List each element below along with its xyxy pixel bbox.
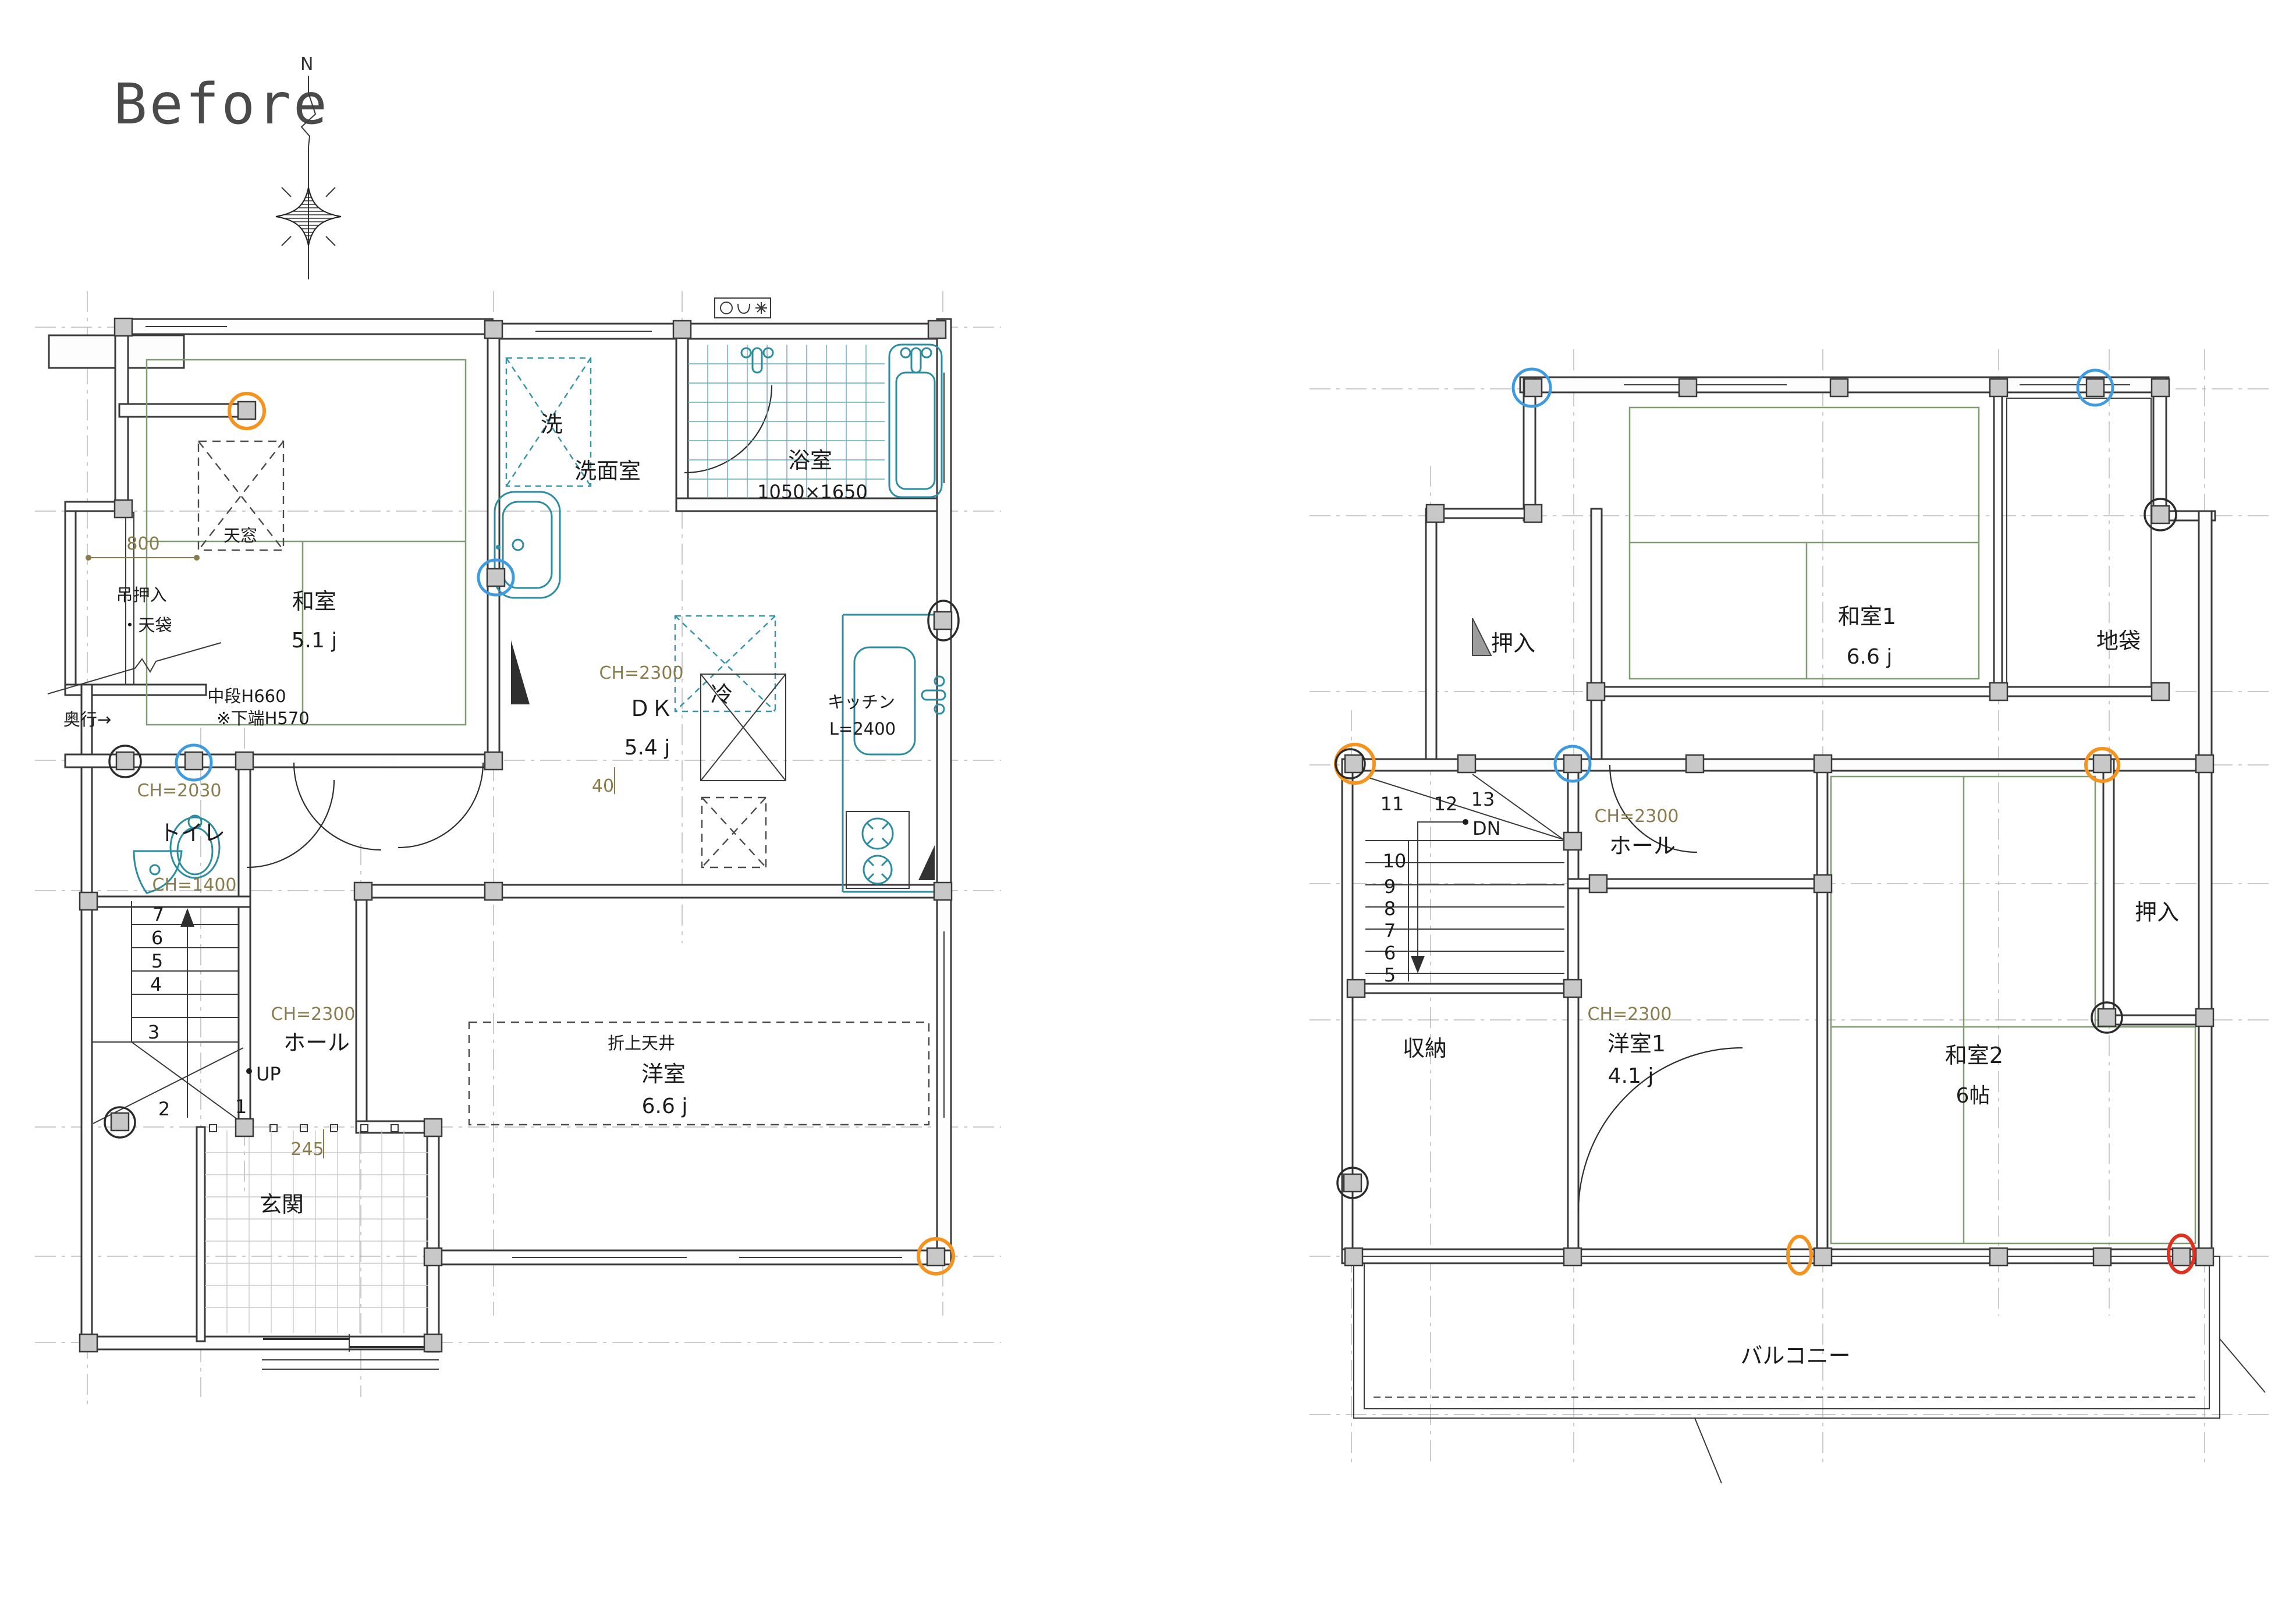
bathroom	[688, 345, 942, 498]
yoshitsu-area: 6.6 j	[642, 1094, 688, 1118]
toilet-label: トイレ	[159, 820, 225, 846]
stair-8: 8	[1384, 898, 1396, 920]
yoshitsu1-area: 4.1 j	[1608, 1064, 1654, 1088]
hall-ch-label: CH=2300	[271, 1004, 356, 1025]
floor1-labels: 和室 5.1 j 天窓 800 吊押入 ・天袋 奥行→ 中段H660 ※下端H5…	[63, 412, 896, 1217]
stair-7: 7	[152, 903, 164, 926]
entrance-label: 玄関	[260, 1192, 304, 1217]
hanging-closet-label: 吊押入	[116, 585, 166, 605]
bath-tile-grid	[688, 345, 885, 498]
dn-label: DN	[1472, 817, 1501, 839]
floorplan-canvas: Before N	[0, 0, 2296, 1616]
oshiire-left-label: 押入	[1491, 630, 1535, 656]
dk-label: ＤＫ	[629, 696, 673, 721]
stair-6f2: 6	[1384, 942, 1396, 964]
entrance-tiles	[205, 1131, 428, 1333]
yoshitsu-label: 洋室	[641, 1061, 686, 1087]
floor2-tatami-washitsu1	[1630, 407, 1979, 679]
stair-3: 3	[148, 1021, 159, 1043]
shuno-label: 収納	[1403, 1036, 1447, 1061]
yoshitsu1-ch-label: CH=2300	[1588, 1004, 1672, 1025]
stair-11: 11	[1381, 793, 1404, 815]
washroom-label: 洗面室	[574, 458, 641, 484]
stair-1: 1	[235, 1096, 247, 1118]
bathtub	[889, 345, 942, 497]
stair-6: 6	[151, 927, 163, 949]
up-label: UP	[256, 1063, 281, 1085]
page-title: Before	[113, 72, 329, 137]
shower-fixture	[741, 348, 773, 373]
dk-ch-label: CH=2300	[599, 663, 684, 683]
title-block: Before N	[113, 54, 341, 279]
stove	[846, 811, 909, 888]
stair-10: 10	[1383, 850, 1407, 872]
stair-5: 5	[151, 950, 163, 972]
shitaba-note: ※下端H570	[217, 708, 309, 728]
bathroom-size: 1050×1650	[757, 481, 868, 503]
kitchen-counter	[843, 615, 945, 892]
tenbukuro-label: ・天袋	[121, 615, 172, 635]
stair-9: 9	[1384, 876, 1396, 898]
chudan-note: 中段H660	[207, 686, 286, 706]
washer-label: 洗	[541, 412, 563, 437]
dim-800-label: 800	[126, 534, 159, 554]
stair-2: 2	[158, 1098, 170, 1120]
balcony	[1354, 1256, 2265, 1483]
yoshitsu1-label: 洋室1	[1607, 1031, 1666, 1057]
washitsu-label: 和室	[292, 589, 336, 614]
oshiire-marker-triangle	[1472, 618, 1491, 655]
kitchen-label: キッチン	[828, 692, 895, 712]
washitsu1-label: 和室1	[1838, 604, 1896, 629]
north-label: N	[300, 54, 313, 75]
kitchen-length: L=2400	[829, 719, 896, 739]
floor1-plan: 和室 5.1 j 天窓 800 吊押入 ・天袋 奥行→ 中段H660 ※下端H5…	[35, 291, 1001, 1409]
ch2030-label: CH=2030	[137, 781, 222, 801]
coved-ceiling-label: 折上天井	[608, 1033, 675, 1053]
oshiire-right-label: 押入	[2135, 899, 2179, 925]
legend-box	[715, 298, 771, 318]
washitsu1-area: 6.6 j	[1847, 645, 1893, 669]
floorplan-page: Before N	[0, 0, 2296, 1616]
dim-800	[86, 555, 200, 561]
fridge-label: 冷	[711, 682, 733, 707]
skylight-label: 天窓	[223, 526, 257, 545]
washitsu-area: 5.1 j	[292, 629, 338, 653]
stair-4: 4	[150, 973, 162, 995]
stair-7f2: 7	[1384, 920, 1396, 942]
coved-ceiling-box	[469, 1022, 929, 1125]
hall-label: ホール	[283, 1030, 350, 1055]
depth-label: 奥行→	[63, 710, 111, 729]
hall2-ch-label: CH=2300	[1595, 806, 1679, 827]
stair-12: 12	[1434, 793, 1458, 815]
floor1-grid	[35, 291, 1001, 1409]
stair-5f2: 5	[1384, 964, 1396, 986]
balcony-label: バルコニー	[1740, 1343, 1850, 1369]
dk-dashed-box	[702, 798, 766, 867]
jibukuro-label: 地袋	[2096, 628, 2141, 654]
washitsu2-area: 6帖	[1956, 1084, 1990, 1108]
dk-area: 5.4 j	[624, 736, 670, 760]
hall2-label: ホール	[1609, 833, 1676, 859]
dim-245-label: 245	[290, 1139, 324, 1160]
compass-star	[276, 187, 341, 246]
floor2-plan: 押入 和室1 6.6 j 地袋 11 12 13 DN 10 9 8 7 6 5…	[1310, 349, 2270, 1483]
kitchen-marker-triangle	[918, 845, 935, 880]
washroom-marker-triangle	[511, 640, 530, 704]
dim-40-label: 40	[592, 776, 614, 796]
floor2-tatami-washitsu2	[1831, 777, 2195, 1243]
bathroom-label: 浴室	[788, 448, 832, 473]
ch1400-label: CH=1400	[152, 875, 237, 895]
stair-13: 13	[1471, 788, 1495, 810]
washitsu2-label: 和室2	[1945, 1043, 2003, 1068]
